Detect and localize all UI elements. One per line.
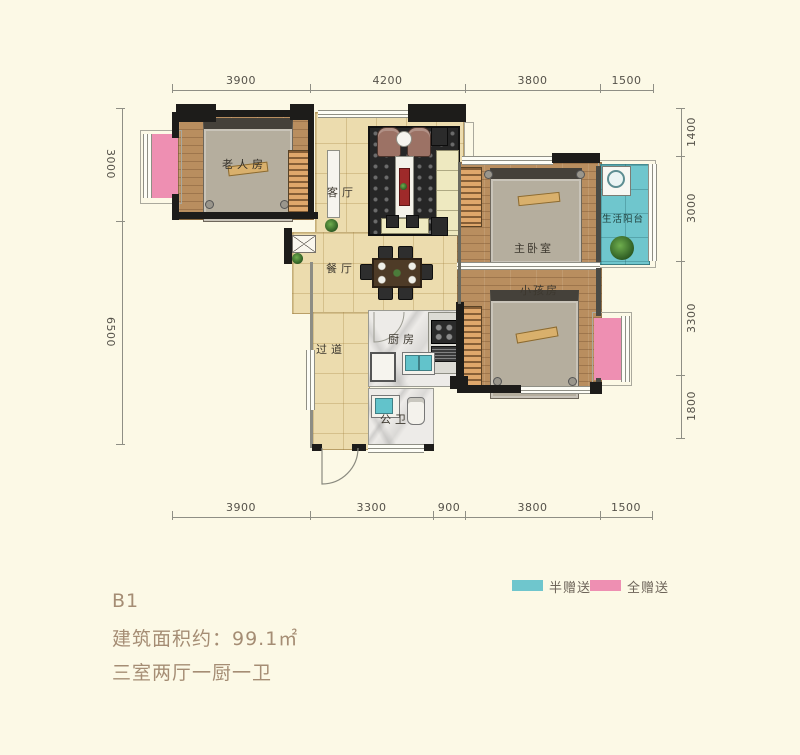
dim-top-3800: 3800 — [465, 74, 600, 87]
dim-right-1800: 1800 — [685, 376, 699, 436]
ruler-right-tick — [676, 375, 685, 376]
built-area-text: 建筑面积约：99.1㎡ — [112, 624, 298, 651]
elder-wardrobe — [288, 150, 310, 214]
sink-basin — [405, 355, 419, 371]
fridge — [370, 352, 396, 382]
left-bay-window — [143, 134, 152, 198]
dim-right-3000: 3000 — [685, 178, 699, 238]
living-top-window — [318, 110, 408, 118]
dim-bottom-3900: 3900 — [172, 501, 310, 514]
dim-bottom-900: 900 — [433, 501, 465, 514]
dim-left-6500: 6500 — [103, 302, 117, 362]
ruler-bottom-tick — [652, 511, 653, 520]
corridor-floor — [312, 312, 370, 450]
wall — [596, 166, 601, 262]
ruler-left-tick — [116, 108, 125, 109]
washer-drum-icon — [607, 170, 625, 188]
corridor-label: 过道 — [316, 341, 346, 357]
living-plant — [325, 219, 338, 232]
master-wardrobe — [460, 167, 482, 227]
sink-basin — [419, 355, 432, 371]
master-bedroom-label: 主卧室 — [514, 240, 553, 256]
master-top-window — [462, 156, 553, 165]
wall — [408, 104, 466, 122]
ruler-top-line — [172, 90, 653, 91]
master-nightstand — [484, 170, 493, 179]
corner-table — [431, 127, 448, 146]
floorplan-canvas: 3900 4200 3800 1500 3900 3300 900 3800 1… — [0, 0, 800, 755]
hallway-plant — [292, 253, 303, 264]
dining-chair — [378, 287, 393, 300]
ruler-left-tick — [116, 221, 125, 222]
master-kids-divider — [457, 262, 600, 270]
dim-right-3300: 3300 — [685, 288, 699, 348]
wall — [312, 444, 322, 451]
dim-top-3900: 3900 — [172, 74, 310, 87]
av-equipment — [406, 215, 419, 228]
table-plant — [400, 183, 407, 190]
ruler-right-tick — [676, 438, 685, 439]
layout-text: 三室两厅一厨一卫 — [112, 658, 272, 685]
corner-table — [431, 217, 448, 236]
right-bay-window — [621, 316, 630, 382]
living-room-label: 客厅 — [327, 184, 357, 200]
balcony-right-window — [648, 164, 657, 261]
wall — [450, 376, 468, 389]
dim-right-1400: 1400 — [685, 102, 699, 162]
kids-bed — [490, 290, 579, 399]
ruler-right-tick — [676, 261, 685, 262]
elder-nightstand — [205, 200, 214, 209]
wall — [596, 268, 601, 316]
full-gift-area-left — [150, 134, 178, 198]
kids-room-label: 小孩房 — [520, 282, 559, 298]
av-equipment — [386, 215, 399, 228]
balcony-plant — [610, 236, 634, 260]
ruler-bottom-line — [172, 517, 652, 518]
half-gift-label: 半赠送 — [549, 577, 591, 596]
elder-room-label: 老人房 — [222, 156, 267, 172]
dining-table — [372, 258, 422, 288]
full-gift-label: 全赠送 — [627, 577, 669, 596]
wall — [172, 112, 179, 138]
kitchen-label: 厨房 — [388, 331, 418, 347]
dining-chair — [398, 287, 413, 300]
unit-name: B1 — [112, 590, 139, 612]
ruler-left-tick — [116, 444, 125, 445]
ruler-left-line — [122, 108, 123, 444]
dining-room-label: 餐厅 — [326, 260, 356, 276]
dim-top-1500: 1500 — [600, 74, 653, 87]
wall — [308, 117, 314, 214]
wall — [176, 212, 318, 219]
kids-bottom-window — [521, 386, 593, 394]
full-gift-area-right — [594, 318, 621, 380]
wall — [352, 444, 366, 451]
full-gift-swatch — [590, 580, 621, 591]
dim-bottom-1500: 1500 — [600, 501, 652, 514]
bathroom-label: 公卫 — [380, 411, 410, 427]
corridor-left-window — [306, 350, 315, 410]
dim-left-3000: 3000 — [103, 134, 117, 194]
ruler-right-tick — [676, 156, 685, 157]
wall — [552, 153, 600, 163]
half-gift-swatch — [512, 580, 543, 591]
bathroom-bottom-window — [368, 444, 424, 453]
stove — [431, 320, 457, 344]
ruler-right-tick — [676, 108, 685, 109]
wall — [284, 228, 292, 264]
dim-bottom-3300: 3300 — [310, 501, 433, 514]
wall — [590, 382, 602, 394]
wall — [458, 162, 461, 304]
shoe-cabinet — [292, 235, 316, 253]
wall — [424, 444, 434, 451]
dim-top-4200: 4200 — [310, 74, 465, 87]
kids-nightstand — [568, 377, 577, 386]
balcony-label: 生活阳台 — [602, 211, 644, 225]
round-side-table — [396, 131, 412, 147]
ruler-top-tick — [653, 84, 654, 93]
ruler-right-line — [681, 108, 682, 438]
dim-bottom-3800: 3800 — [465, 501, 600, 514]
wall — [456, 302, 464, 382]
master-nightstand — [576, 170, 585, 179]
